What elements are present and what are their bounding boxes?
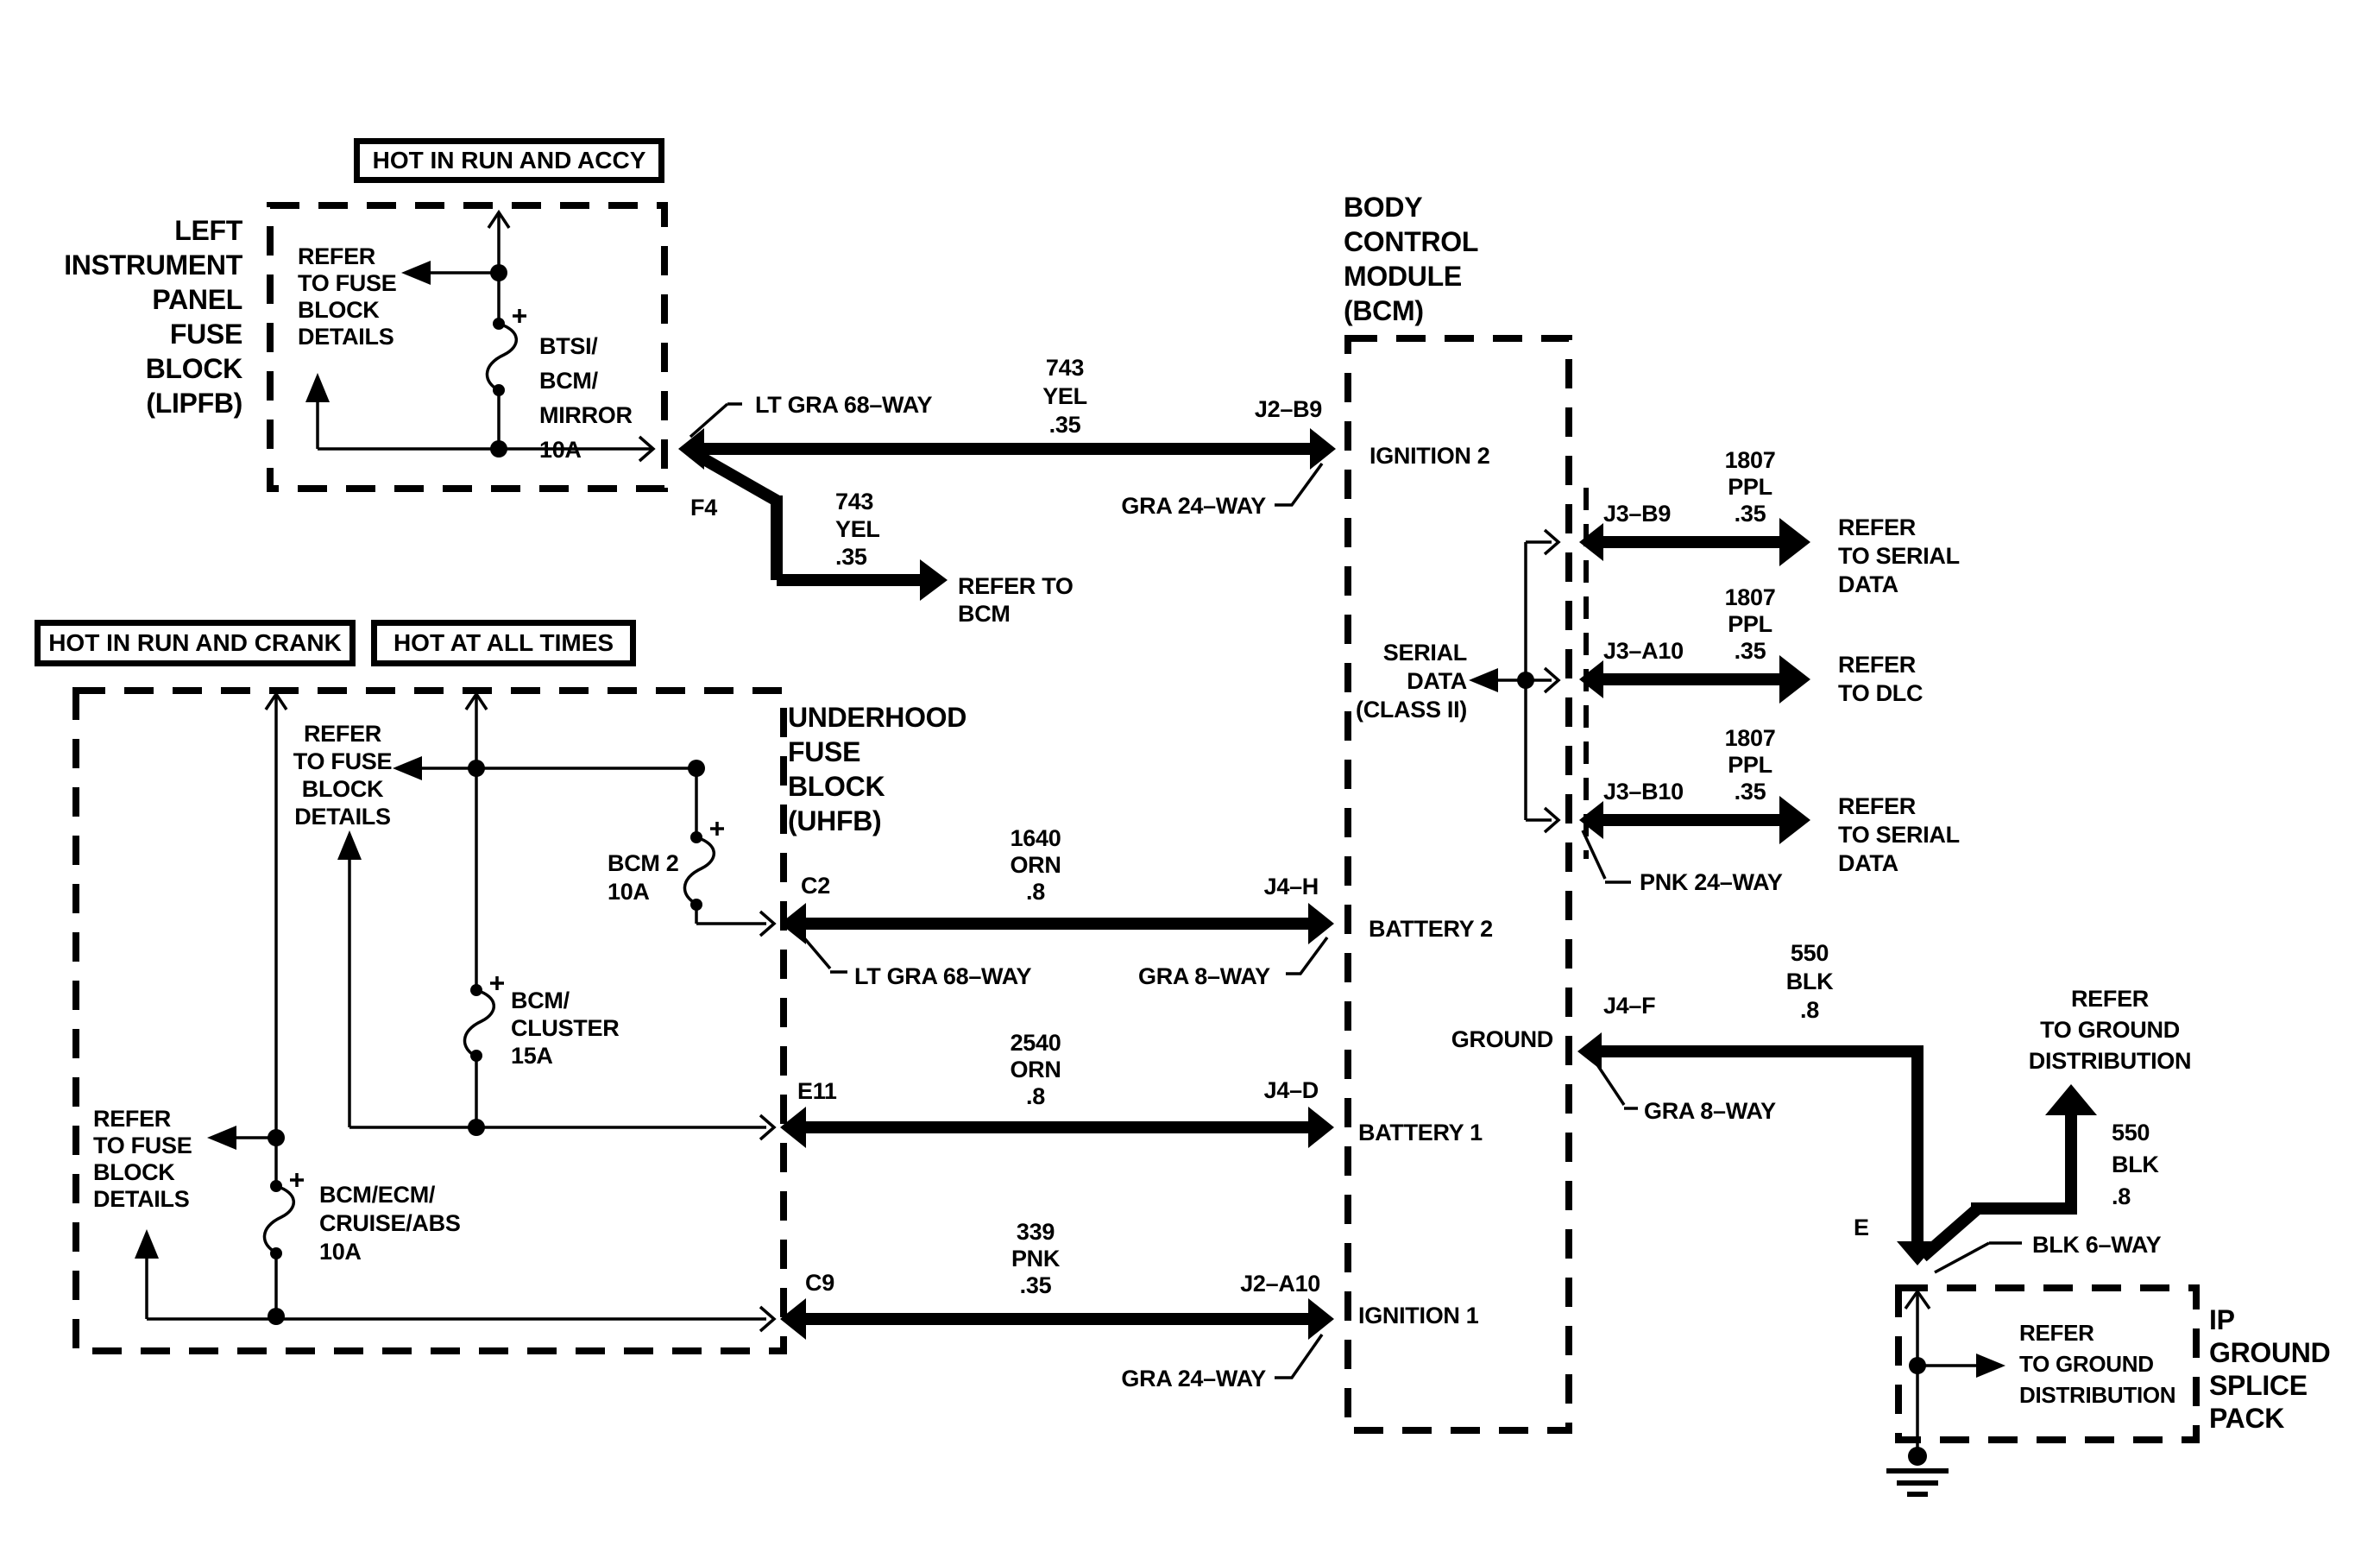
circuit-1640-orn: 1640 ORN .8 — [975, 825, 1096, 906]
banner-label: HOT IN RUN AND ACCY — [373, 147, 646, 174]
uhfb-refer-note-top: REFER TO FUSE BLOCK DETAILS — [286, 720, 399, 830]
connector-gra-8-way-ground: GRA 8–WAY — [1644, 1097, 1776, 1126]
circuit-339-pnk: 339 PNK .35 — [975, 1219, 1096, 1299]
connector-lt-gra-68-way-f4: LT GRA 68–WAY — [755, 391, 932, 420]
pin-j3-a10: J3–A10 — [1603, 637, 1684, 666]
banner-hot-in-run-and-accy: HOT IN RUN AND ACCY — [354, 138, 664, 183]
wire-ground — [1590, 1045, 2071, 1272]
refer-to-ground-distribution-note: REFER TO GROUND DISTRIBUTION — [2002, 983, 2218, 1076]
pin-c2: C2 — [801, 872, 830, 900]
pin-j4-h: J4–H — [1232, 873, 1319, 901]
uhfb-fuse-bcm2-label: BCM 2 10A — [608, 849, 679, 906]
connector-lt-gra-68-way-c2: LT GRA 68–WAY — [854, 962, 1031, 991]
uhfb-fuse-bcm-cluster-label: BCM/ CLUSTER 15A — [511, 987, 619, 1070]
circuit-550-blk-1: 550 BLK .8 — [1749, 939, 1870, 1025]
pin-j3-b9: J3–B9 — [1603, 500, 1671, 528]
circuit-1807-ppl-2: 1807 PPL .35 — [1690, 584, 1810, 665]
lipfb-title: LEFT INSTRUMENT PANEL FUSE BLOCK (LIPFB) — [48, 213, 242, 420]
uhfb-fuse-bcm-ecm-label: BCM/ECM/ CRUISE/ABS 10A — [319, 1181, 461, 1266]
pin-c9: C9 — [805, 1269, 834, 1297]
connector-gra-24-way-bottom: GRA 24–WAY — [1102, 1365, 1266, 1393]
circuit-1807-ppl-1: 1807 PPL .35 — [1690, 447, 1810, 527]
pin-j2-b9: J2–B9 — [1236, 395, 1322, 424]
ip-splice-title: IP GROUND SPLICE PACK — [2209, 1303, 2330, 1435]
connector-pnk-24-way: PNK 24–WAY — [1640, 868, 1783, 897]
refer-to-serial-data-1: REFER TO SERIAL DATA — [1838, 514, 1960, 599]
circuit-1807-ppl-3: 1807 PPL .35 — [1690, 725, 1810, 805]
lipfb-fuse-btsi-label: BTSI/ BCM/ MIRROR 10A — [539, 329, 633, 467]
lipfb-refer-note: REFER TO FUSE BLOCK DETAILS — [298, 243, 396, 350]
connector-gra-24-way-top: GRA 24–WAY — [1102, 492, 1266, 521]
ip-refer-ground-note: REFER TO GROUND DISTRIBUTION — [2019, 1317, 2175, 1410]
pin-e: E — [1854, 1214, 1869, 1242]
pin-j4-f: J4–F — [1603, 992, 1655, 1020]
bcm-box — [1348, 338, 1586, 1430]
pin-j4-d: J4–D — [1232, 1076, 1319, 1105]
bcm-pin-serial-data: SERIAL DATA (CLASS II) — [1329, 639, 1467, 724]
banner-label: HOT IN RUN AND CRANK — [48, 629, 342, 657]
connector-gra-8-way-c2: GRA 8–WAY — [1138, 962, 1270, 991]
refer-to-serial-data-2: REFER TO SERIAL DATA — [1838, 792, 1960, 878]
uhfb-title: UNDERHOOD FUSE BLOCK (UHFB) — [788, 700, 966, 838]
ip-splice-symbols — [1908, 1354, 2005, 1466]
wires-uhfb-leaders — [801, 934, 1327, 1378]
wiring-diagram: HOT IN RUN AND ACCY HOT IN RUN AND CRANK… — [0, 0, 2380, 1565]
refer-to-bcm-note: REFER TO BCM — [958, 572, 1074, 628]
connector-blk-6-way: BLK 6–WAY — [2032, 1231, 2161, 1259]
circuit-743-yel-branch: 743 YEL .35 — [835, 488, 880, 571]
bcm-pin-battery2: BATTERY 2 — [1369, 915, 1493, 943]
bcm-pin-ignition1: IGNITION 1 — [1358, 1302, 1479, 1330]
circuit-2540-orn: 2540 ORN .8 — [975, 1030, 1096, 1110]
bcm-title: BODY CONTROL MODULE (BCM) — [1344, 190, 1478, 328]
banner-hot-in-run-and-crank: HOT IN RUN AND CRANK — [35, 620, 356, 666]
banner-hot-at-all-times: HOT AT ALL TIMES — [371, 620, 636, 666]
pin-f4: F4 — [690, 494, 717, 522]
banner-label: HOT AT ALL TIMES — [394, 629, 614, 657]
bcm-pin-ignition2: IGNITION 2 — [1369, 442, 1490, 470]
uhfb-refer-note-left: REFER TO FUSE BLOCK DETAILS — [93, 1106, 192, 1213]
pin-e11: E11 — [797, 1077, 837, 1106]
refer-to-dlc: REFER TO DLC — [1838, 651, 1923, 708]
pnk-connector-leader — [1583, 830, 1631, 882]
circuit-550-blk-2: 550 BLK .8 — [2112, 1117, 2159, 1213]
pin-j3-b10: J3–B10 — [1603, 778, 1684, 806]
bcm-pin-battery1: BATTERY 1 — [1358, 1119, 1483, 1147]
circuit-743-yel: 743 YEL .35 — [1004, 354, 1125, 439]
bcm-pin-ground: GROUND — [1424, 1025, 1553, 1054]
pin-j2-a10: J2–A10 — [1234, 1270, 1320, 1298]
